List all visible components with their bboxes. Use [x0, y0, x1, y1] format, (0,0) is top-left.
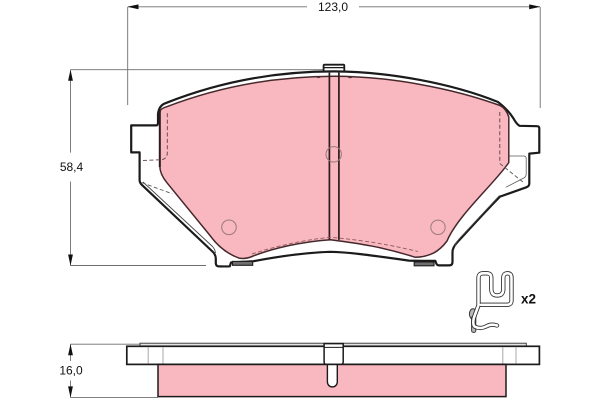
svg-text:123,0: 123,0 [318, 0, 348, 14]
svg-text:16,0: 16,0 [59, 364, 83, 378]
svg-text:x2: x2 [521, 292, 536, 307]
svg-text:58,4: 58,4 [60, 160, 84, 174]
